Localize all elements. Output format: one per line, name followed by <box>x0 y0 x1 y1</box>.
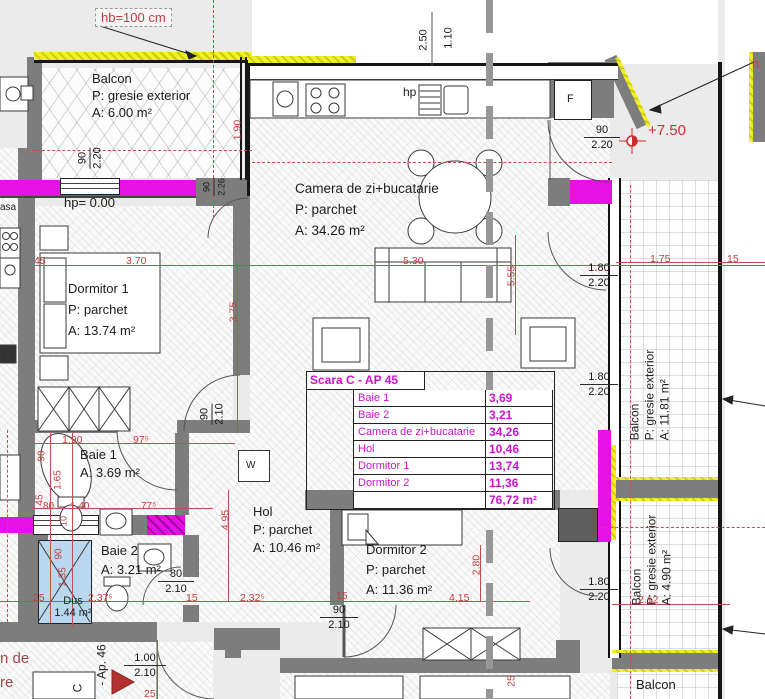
divider2-ins-bot <box>612 669 718 672</box>
table-row-label: Camera de zi+bucatarie <box>353 424 485 441</box>
dim-415: 4.15 <box>449 590 469 607</box>
section-line <box>486 0 493 699</box>
dim-15c: 15 <box>336 588 348 605</box>
dim-line-h-right-top <box>616 262 765 263</box>
wall-bath-south <box>130 515 147 535</box>
dim-175: 1.75 <box>650 251 670 268</box>
table-row-label: Dormitor 1 <box>353 458 485 475</box>
wall-left-column <box>18 148 35 642</box>
door-size-hol: 902.10 <box>320 604 358 631</box>
room-label-balcon-r1: BalconP: gresie exteriorA: 11.81 m² <box>628 350 673 441</box>
partial-text-2: re <box>0 674 13 691</box>
hb-note: hb=100 cm <box>95 8 172 27</box>
dim-370: 3.70 <box>126 253 146 270</box>
wall-bottom-right-stub <box>556 640 580 673</box>
highlight-bath-south-b <box>147 515 185 535</box>
table-row-value: 11,36 <box>485 475 553 492</box>
axis-v-left-edge <box>7 430 8 622</box>
wall-tr-cap <box>548 178 570 206</box>
dim-line-v-495 <box>228 490 229 601</box>
room-label-camera: Camera de zi+bucatarieP: parchetA: 34.26… <box>295 178 439 241</box>
dim-495: 4.95 <box>218 510 235 530</box>
divider1-ins-bot <box>612 498 718 501</box>
dim-line-h-bath2 <box>33 508 213 509</box>
scara-ref: C <box>70 684 87 693</box>
highlight-bath-south-a <box>0 517 33 533</box>
door-size-small: 902.26 <box>201 178 228 196</box>
dim-15a: 15 <box>727 251 739 268</box>
dim-45: 45 <box>34 253 46 270</box>
insulation-top-left <box>34 52 252 60</box>
dim-190b: 1.90 <box>62 432 82 449</box>
table-row-value: 13,74 <box>485 458 553 475</box>
window-size-2: 1.802.20 <box>580 371 618 398</box>
room-label-balcon-tl: BalconP: gresie exteriorA: 6.00 m² <box>92 70 190 121</box>
table-total-value: 76,72 m² <box>485 492 553 509</box>
partial-h-label: h <box>752 55 759 72</box>
dim-530: 5.30 <box>403 253 423 270</box>
balcony-divider-1 <box>612 480 718 498</box>
kitchen-top-wall <box>248 66 618 80</box>
room-label-balcon-br: Balcon <box>636 676 676 693</box>
dim-190: 1.90 <box>230 120 247 140</box>
dim-90a: 90 <box>34 450 51 461</box>
room-label-baie2: Baie 2A: 3.21 m² <box>101 541 161 579</box>
dim-140: 1.40 <box>70 498 89 515</box>
level-value: +7.50 <box>648 122 686 139</box>
neighbor-left-strip <box>0 148 18 642</box>
area-table: Scara C - AP 45 Baie 13,69 Baie 23,21 Ca… <box>306 371 555 510</box>
highlight-wall-tr <box>570 180 612 204</box>
axis-h-balcony-right <box>600 527 765 528</box>
axis-v-balcony-right <box>630 185 631 699</box>
axis-h-balcony-tl <box>27 150 252 151</box>
table-row-value: 3,21 <box>485 407 553 424</box>
wall-balcony-left <box>27 57 42 180</box>
room-label-dormitor2: Dormitor 2P: parchetA: 11.36 m² <box>366 540 432 600</box>
dim-90b: 90 <box>51 548 68 559</box>
floor-plan-canvas: Scara C - AP 45 Baie 13,69 Baie 23,21 Ca… <box>0 0 765 699</box>
dim-line-v-375 <box>237 265 238 432</box>
table-row-label: Baie 1 <box>353 390 485 407</box>
table-row-value: 10,46 <box>485 441 553 458</box>
room-label-baie1: Baie 1A: 3.69 m² <box>80 446 140 482</box>
door-size-balcony-tl: 902.20 <box>77 147 104 168</box>
dim-25a: 25 <box>33 590 45 607</box>
dim-2325: 2.32⁵ <box>240 590 265 607</box>
dim-25b: 25 <box>504 675 521 687</box>
window-size-3: 1.802.20 <box>580 576 618 603</box>
insulation-kitchen-top <box>248 56 356 63</box>
dim-10: 10 <box>56 516 73 526</box>
dim-2375: 2.37⁵ <box>88 590 113 607</box>
hp-zero-label: hp= 0.00 <box>64 194 115 211</box>
table-row-label: Dormitor 2 <box>353 475 485 492</box>
hp-label: hp <box>403 84 416 101</box>
dim-165: 1.65 <box>50 470 67 489</box>
room-label-hol: HolP: parchetA: 10.46 m² <box>253 503 320 557</box>
balcony-right-rail-1 <box>240 57 242 180</box>
partial-asa-label: asa <box>0 199 16 216</box>
level-marker <box>619 128 646 154</box>
divider2-ins-top <box>612 650 718 653</box>
axis-h-living <box>252 162 612 163</box>
dim-250: 2.50 <box>416 29 433 50</box>
wall-bottom-mid <box>280 658 580 673</box>
dim-975: 97⁵ <box>133 432 149 449</box>
door-size-top-right: 902.20 <box>584 124 620 151</box>
page-top-white <box>252 0 718 64</box>
washer-label: W <box>246 457 255 474</box>
wall-bottom-left <box>0 622 157 642</box>
neighbor-bottom-floor <box>280 673 610 699</box>
dim-25c: 25 <box>144 686 156 699</box>
insulation-right-mid <box>611 445 616 540</box>
dim-280: 2.80 <box>469 555 486 575</box>
table-row-label: Baie 2 <box>353 407 485 424</box>
wall-pier <box>558 508 598 542</box>
balcony-top-edge <box>34 60 252 63</box>
table-total-spacer <box>353 492 485 509</box>
divider1-ins-top <box>612 477 718 480</box>
wall-bath-hol <box>175 433 189 515</box>
room-label-dormitor1: Dormitor 1P: parchetA: 13.74 m² <box>68 278 135 341</box>
dim-775: 77⁵ <box>141 498 156 515</box>
table-row-label: Hol <box>353 441 485 458</box>
dim-212: 2.12 <box>638 592 658 609</box>
living-left-wall-line <box>247 63 250 196</box>
dim-135: 1.35 <box>55 567 72 586</box>
dim-375: 3.75 <box>226 302 243 322</box>
wall-bottom-entry-stub <box>225 650 241 658</box>
window-balcony-tl <box>60 178 120 195</box>
door-size-dormitor1: 902.10 <box>199 403 226 424</box>
dim-555: 5.55 <box>504 266 521 286</box>
wall-baie2-hol-b <box>183 605 199 622</box>
dim-110: 1.10 <box>441 27 458 48</box>
dim-15b: 15 <box>186 590 198 607</box>
highlight-wall-right <box>598 430 611 542</box>
wall-d1-right <box>233 196 250 375</box>
fridge-label: F <box>567 91 574 108</box>
apartment-ref: - Ap. 46 <box>94 644 111 685</box>
balcony-divider-2 <box>612 653 718 669</box>
wall-d1-right-stub <box>233 425 250 433</box>
window-size-1: 1.802.20 <box>580 262 618 289</box>
area-table-title: Scara C - AP 45 <box>307 372 425 390</box>
door-size-entry: 1.002.10 <box>124 652 166 679</box>
dim-80: 80 <box>43 498 54 515</box>
partial-text-1: n de <box>0 650 29 667</box>
table-row-value: 3,69 <box>485 390 553 407</box>
wall-bottom-entry <box>214 628 280 650</box>
table-row-value: 34,26 <box>485 424 553 441</box>
